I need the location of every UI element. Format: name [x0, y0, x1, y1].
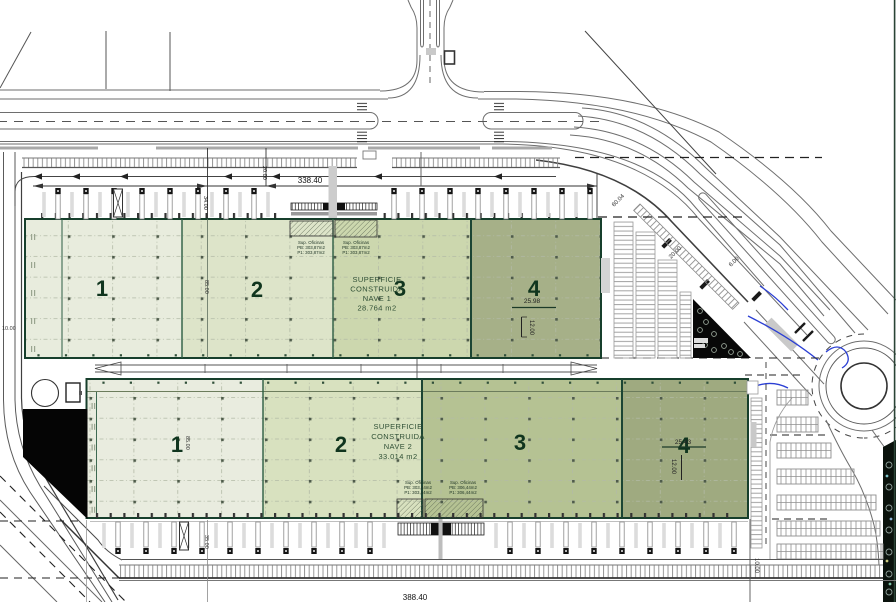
svg-text:10.00: 10.00	[753, 558, 759, 574]
svg-text:P1: 303,44m2: P1: 303,44m2	[404, 490, 432, 495]
svg-text:25.98: 25.98	[524, 298, 541, 305]
svg-text:CONSTRUIDA: CONSTRUIDA	[371, 432, 425, 441]
svg-text:1: 1	[96, 276, 108, 301]
svg-text:SUPERFICIE: SUPERFICIE	[373, 422, 422, 431]
svg-text:338.40: 338.40	[298, 176, 323, 185]
svg-text:P1: 306,44m2: P1: 306,44m2	[449, 490, 477, 495]
svg-text:NAVE 1: NAVE 1	[363, 294, 392, 303]
svg-text:10.00: 10.00	[2, 326, 16, 332]
svg-text:NAVE 2: NAVE 2	[384, 442, 413, 451]
svg-text:12.00: 12.00	[528, 320, 534, 336]
svg-text:35.00: 35.00	[203, 535, 209, 549]
svg-text:3: 3	[514, 430, 526, 455]
svg-text:85.00: 85.00	[184, 436, 190, 450]
svg-text:P1: 303,87m2: P1: 303,87m2	[297, 250, 325, 255]
svg-text:12.00: 12.00	[670, 459, 676, 475]
svg-text:33.014 m2: 33.014 m2	[378, 452, 417, 461]
svg-text:CONSTRUIDA: CONSTRUIDA	[350, 285, 404, 294]
svg-text:28.764 m2: 28.764 m2	[357, 304, 396, 313]
svg-text:2: 2	[335, 432, 347, 457]
svg-text:20.00: 20.00	[261, 166, 267, 180]
svg-text:2: 2	[251, 277, 263, 302]
svg-text:P1: 303,87m2: P1: 303,87m2	[342, 250, 370, 255]
svg-text:85.00: 85.00	[203, 280, 209, 294]
svg-text:SUPERFICIE: SUPERFICIE	[352, 275, 401, 284]
svg-text:1: 1	[171, 432, 183, 457]
svg-text:25.43: 25.43	[675, 439, 692, 446]
svg-text:388.40: 388.40	[403, 593, 428, 602]
svg-text:34.00: 34.00	[202, 196, 208, 210]
